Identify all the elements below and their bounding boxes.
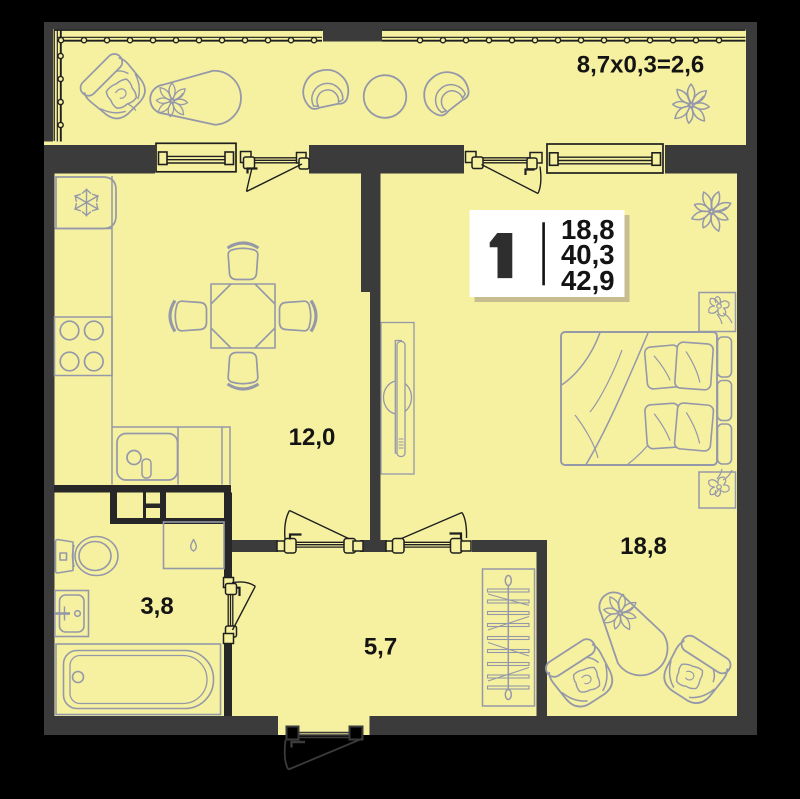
svg-text:18,8: 18,8 [620,533,667,560]
svg-text:3,8: 3,8 [140,593,173,620]
svg-text:8,7x0,3=2,6: 8,7x0,3=2,6 [577,51,704,78]
svg-text:42,9: 42,9 [561,265,615,296]
svg-text:12,0: 12,0 [289,424,336,451]
svg-text:5,7: 5,7 [364,634,397,661]
